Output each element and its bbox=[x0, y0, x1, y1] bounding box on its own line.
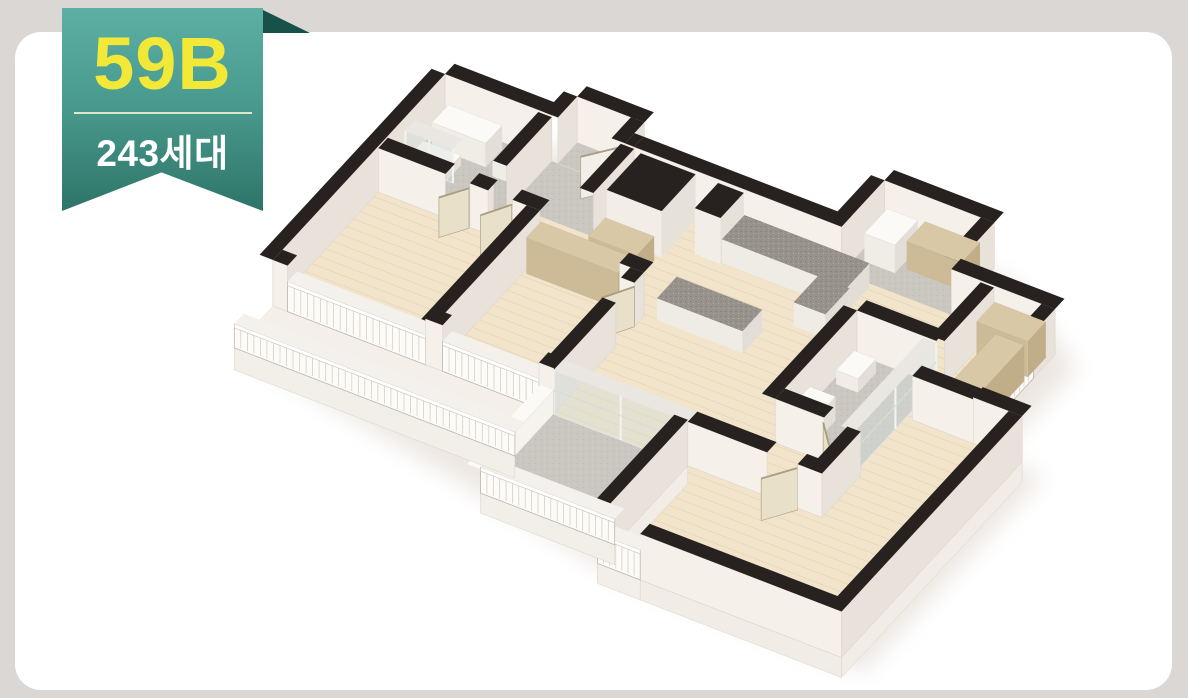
unit-type-label: 59B bbox=[93, 26, 232, 101]
unit-count-label: 243세대 bbox=[96, 123, 228, 177]
page: { "badge": { "type_label": "59B", "units… bbox=[0, 0, 1188, 698]
ribbon-divider bbox=[74, 112, 252, 114]
